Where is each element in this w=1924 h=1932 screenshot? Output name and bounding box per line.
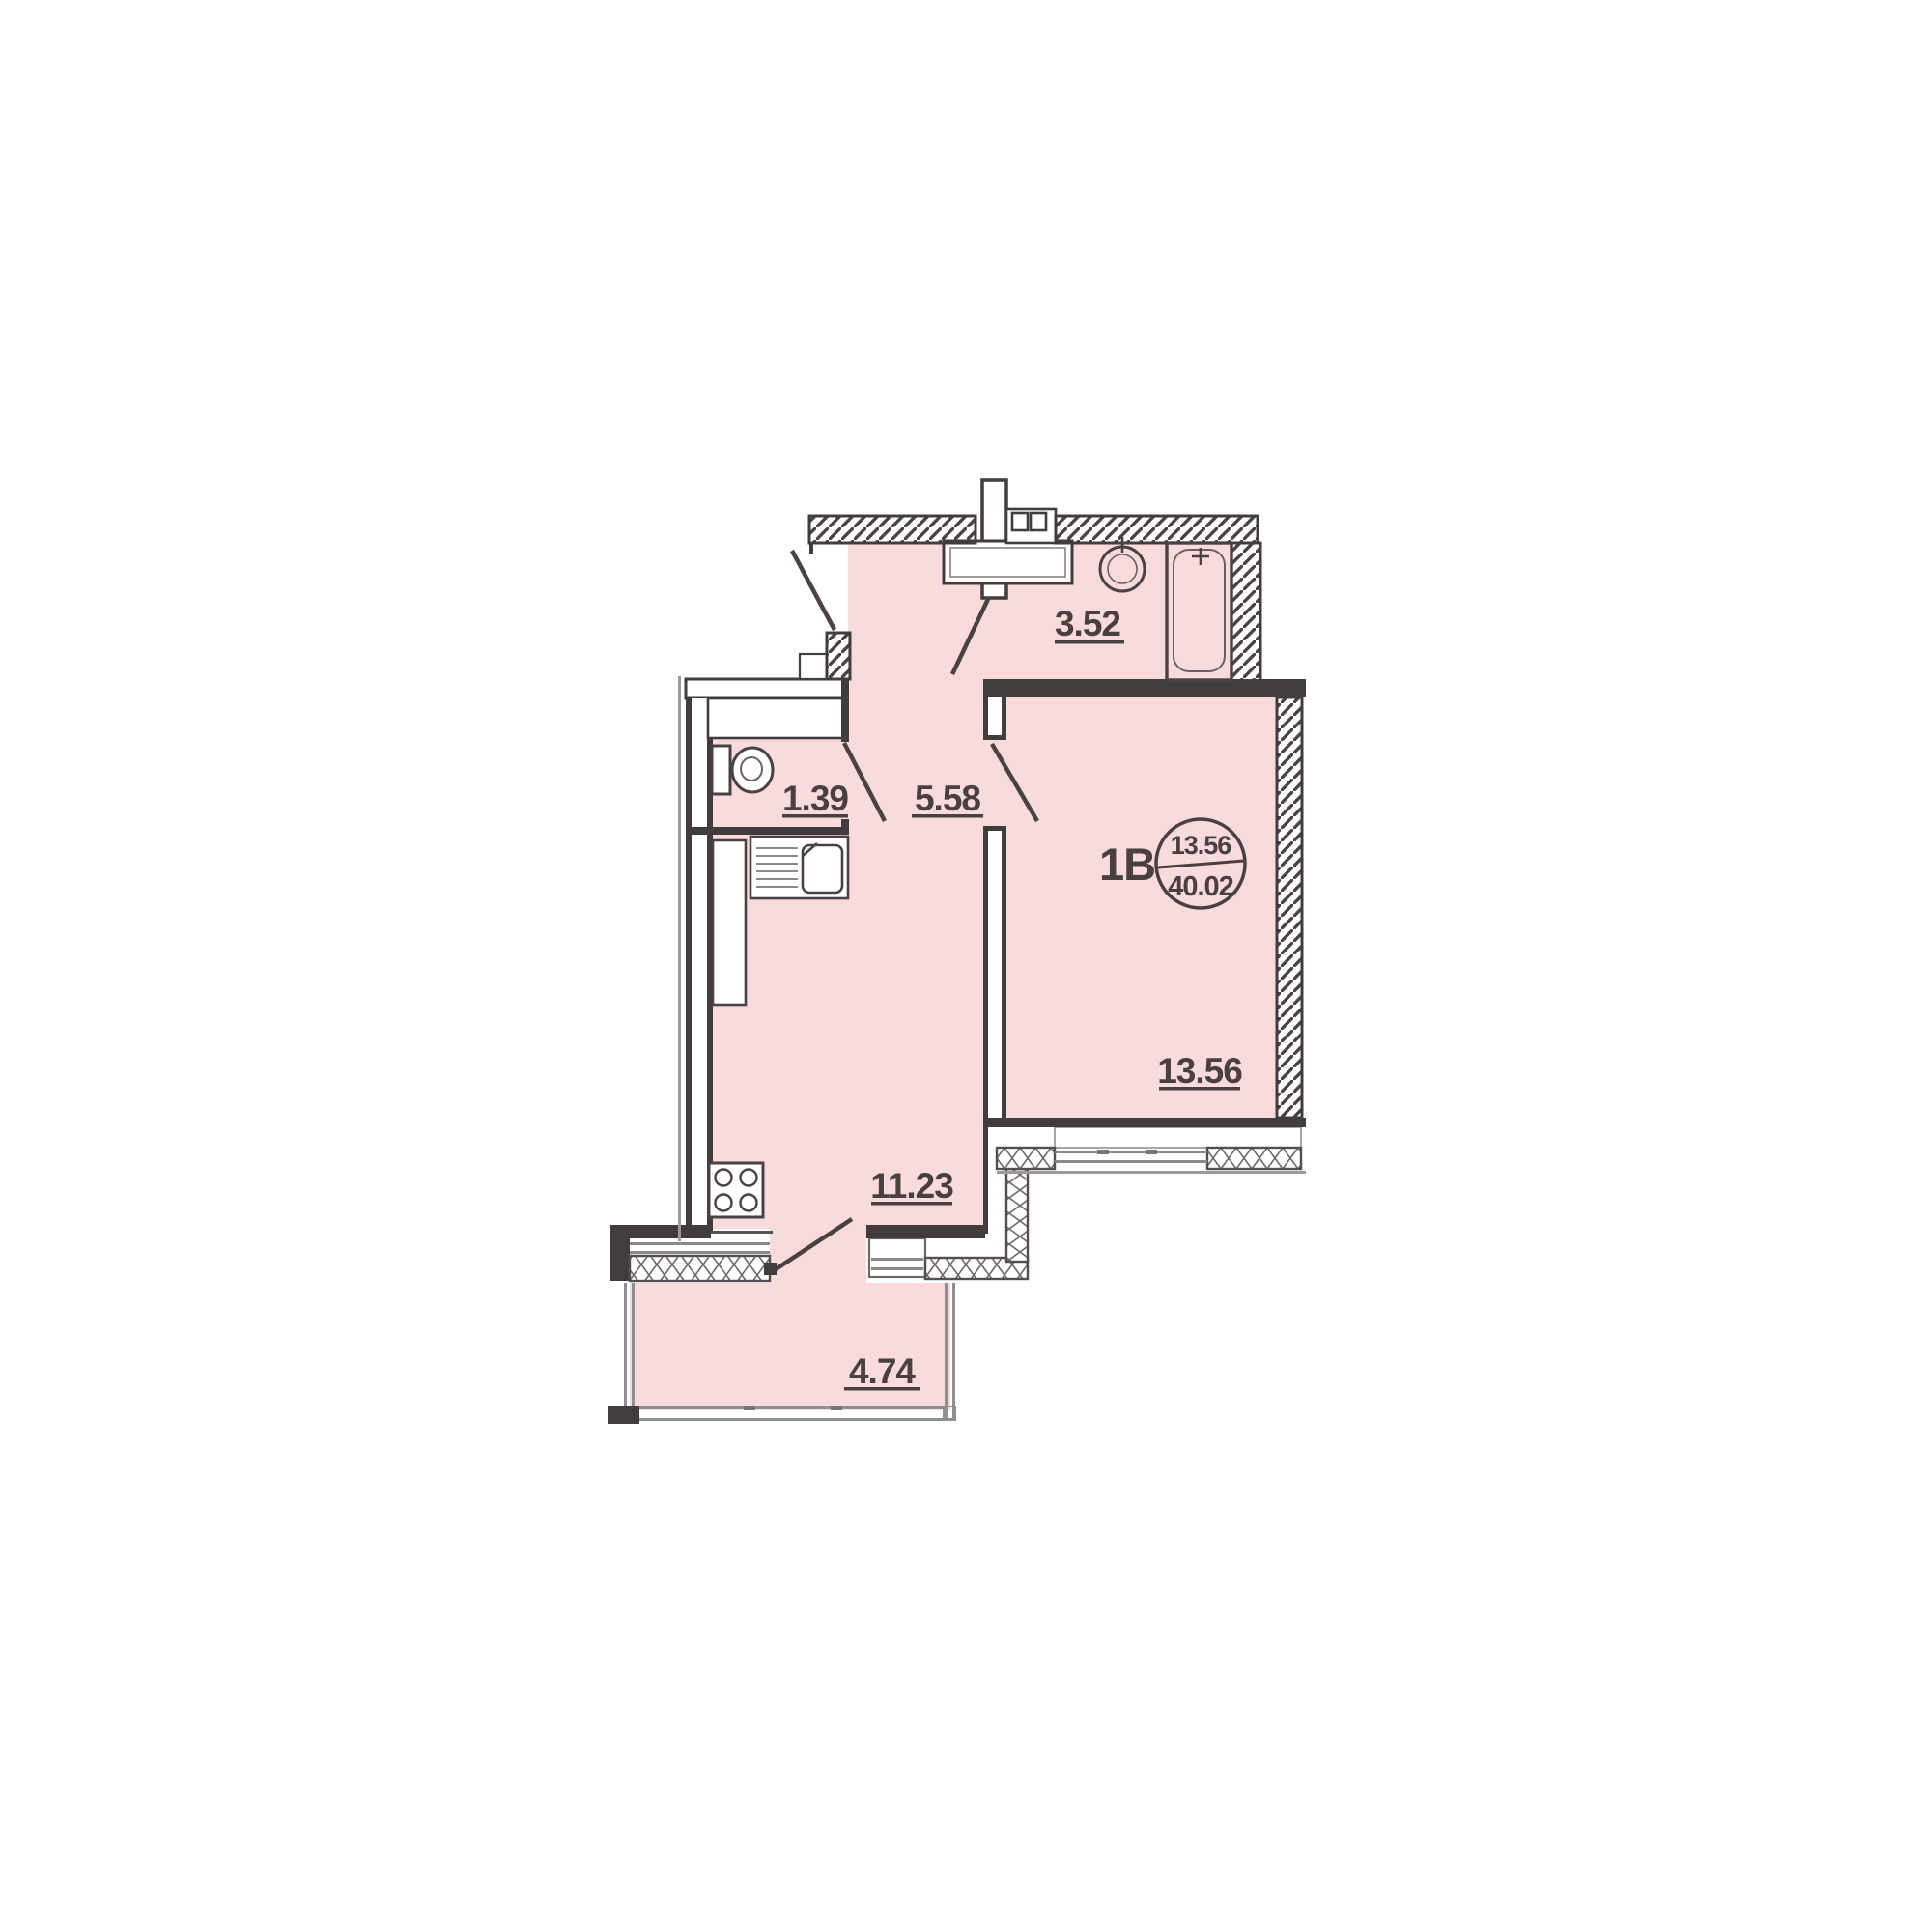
balcony-rail-right <box>945 1283 948 1418</box>
kitchen-sink-icon <box>750 837 848 898</box>
balcony-rail-right <box>952 1283 955 1418</box>
room-fill-balcony-doorway <box>770 1217 866 1287</box>
rail-tick <box>744 1406 755 1410</box>
door-jamb-cap <box>983 735 1006 740</box>
kitchen-bottom-left-pier <box>610 1225 630 1281</box>
bathroom-area-label: 3.52 <box>1055 604 1120 643</box>
balcony-area-underline <box>844 1387 920 1391</box>
glazing-line <box>871 1267 923 1270</box>
kitchen-counter <box>713 840 746 1005</box>
top-wall-left <box>809 516 976 543</box>
outer-contour-line <box>678 676 681 1241</box>
glazing-line <box>630 1242 770 1245</box>
toilet-icon <box>712 746 773 794</box>
entrance-pier <box>827 633 850 679</box>
kitchen-balcony-parapet <box>630 1256 770 1281</box>
vent-shaft-square <box>1031 513 1046 530</box>
wc-top-wall <box>686 679 847 698</box>
wc-right-wall-stub <box>841 679 849 742</box>
balcony-rail-left <box>632 1283 635 1418</box>
entrance-threshold-box <box>800 654 827 679</box>
vent-shaft-square <box>1012 513 1028 530</box>
partition-line <box>1002 697 1006 739</box>
bathroom-area-underline <box>1055 640 1124 644</box>
parapet-hatch <box>1006 1169 1028 1262</box>
living-room-bottom-wall <box>983 1118 1306 1127</box>
living-room-window-parapet-left <box>997 1148 1055 1169</box>
parapet-hatch <box>997 1148 1055 1169</box>
wc-vent-cabinet <box>708 698 843 738</box>
hallway-area-underline <box>912 814 983 818</box>
room-fill-balcony <box>630 1283 950 1410</box>
wc-right-wall-stub <box>841 819 849 835</box>
living-room-area-underline <box>1159 1087 1240 1091</box>
kitchen-window-head-line <box>711 1231 773 1234</box>
glazing-line <box>1055 1151 1207 1153</box>
living-room-area-label: 13.56 <box>1157 1051 1242 1091</box>
bathroom-right-wall <box>1231 543 1260 682</box>
top-wall-right <box>1056 516 1258 543</box>
balcony-area-label: 4.74 <box>849 1351 916 1391</box>
stove-icon <box>709 1163 763 1217</box>
partition-line <box>1002 829 1006 1123</box>
balcony-rail-bottom-outer <box>616 1418 956 1421</box>
balcony-rail-left <box>624 1283 627 1418</box>
rail-tick <box>831 1406 842 1410</box>
kitchen-bottom-right-wall <box>866 1225 985 1238</box>
balcony-corner-parapet-vertical <box>1006 1169 1028 1262</box>
floor-plan-drawing: 3.52 1.39 5.58 11.23 13.56 4.74 1B 13.56… <box>0 0 1924 1932</box>
kitchen-area-label: 11.23 <box>870 1166 953 1206</box>
living-room-window-parapet-right <box>1207 1148 1301 1169</box>
wc-area-underline <box>782 814 848 818</box>
unit-code-label: 1B <box>1099 838 1155 890</box>
balcony-rail-foot <box>608 1406 639 1424</box>
living-room-window-parapet <box>1055 1127 1301 1148</box>
floor-plan-page: 3.52 1.39 5.58 11.23 13.56 4.74 1B 13.56… <box>0 0 1924 1932</box>
balcony-rail-bottom-inner <box>633 1406 948 1409</box>
parapet-hatch <box>630 1256 770 1281</box>
wc-area-label: 1.39 <box>782 779 848 818</box>
unit-living-area-label: 13.56 <box>1171 831 1232 860</box>
balcony-door-pivot <box>764 1263 777 1275</box>
wall-end-tick <box>809 543 813 554</box>
living-room-right-wall <box>1277 697 1302 1118</box>
left-wall-outer-line <box>686 698 692 1233</box>
toilet-bowl <box>732 748 773 792</box>
glazing-line <box>871 1258 923 1261</box>
living-room-top-wall <box>983 679 1306 697</box>
outer-sill-line <box>997 1171 1306 1174</box>
wc-bottom-wall <box>690 827 847 835</box>
partition-line <box>983 697 988 739</box>
parapet-hatch <box>1207 1148 1301 1169</box>
door-jamb-cap <box>983 826 1006 831</box>
glazing-mullion-tick <box>1146 1150 1157 1154</box>
hallway-area-label: 5.58 <box>915 779 980 818</box>
glazing-line <box>630 1251 770 1254</box>
toilet-tank <box>712 746 730 794</box>
glazing-line <box>1055 1160 1207 1163</box>
unit-total-area-label: 40.02 <box>1168 871 1233 902</box>
glazing-mullion-tick <box>1097 1150 1109 1154</box>
partition-line <box>983 829 988 1234</box>
kitchen-area-underline <box>871 1202 952 1206</box>
